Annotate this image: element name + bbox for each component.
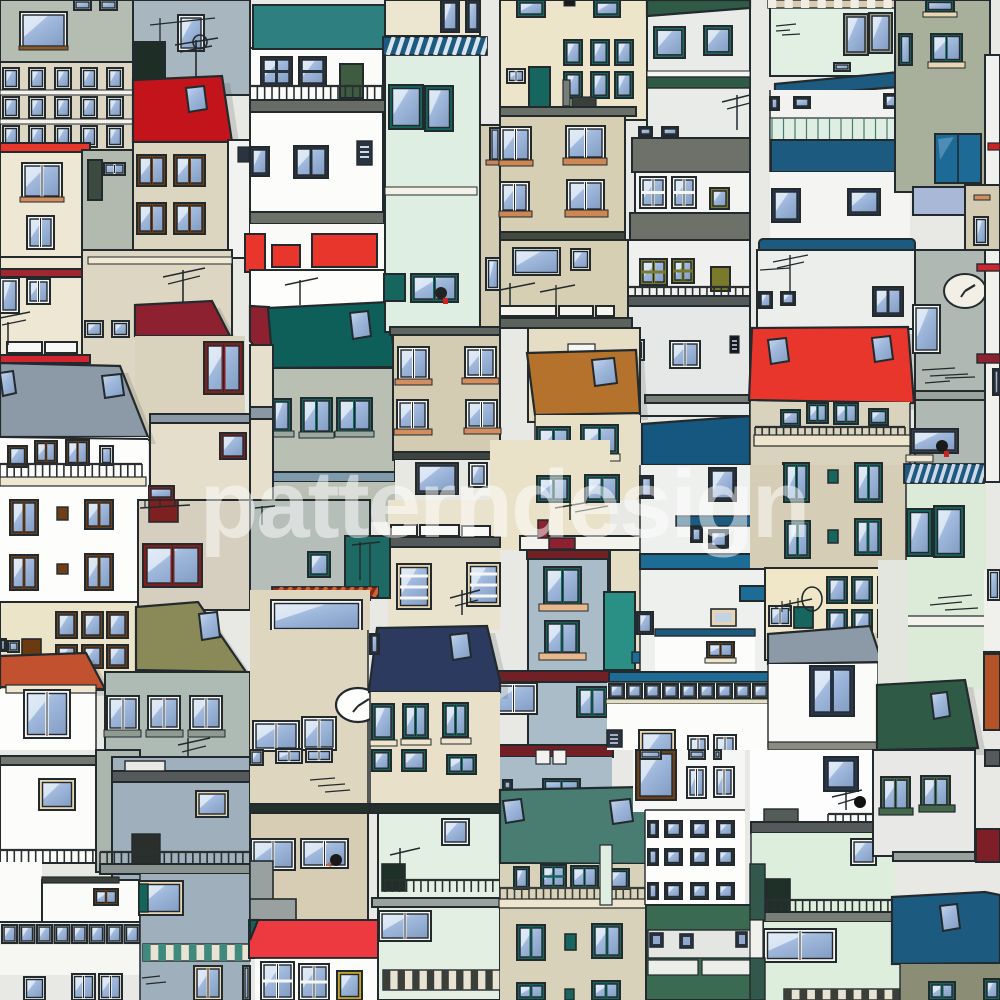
svg-text:patterndesign: patterndesign: [200, 451, 809, 558]
